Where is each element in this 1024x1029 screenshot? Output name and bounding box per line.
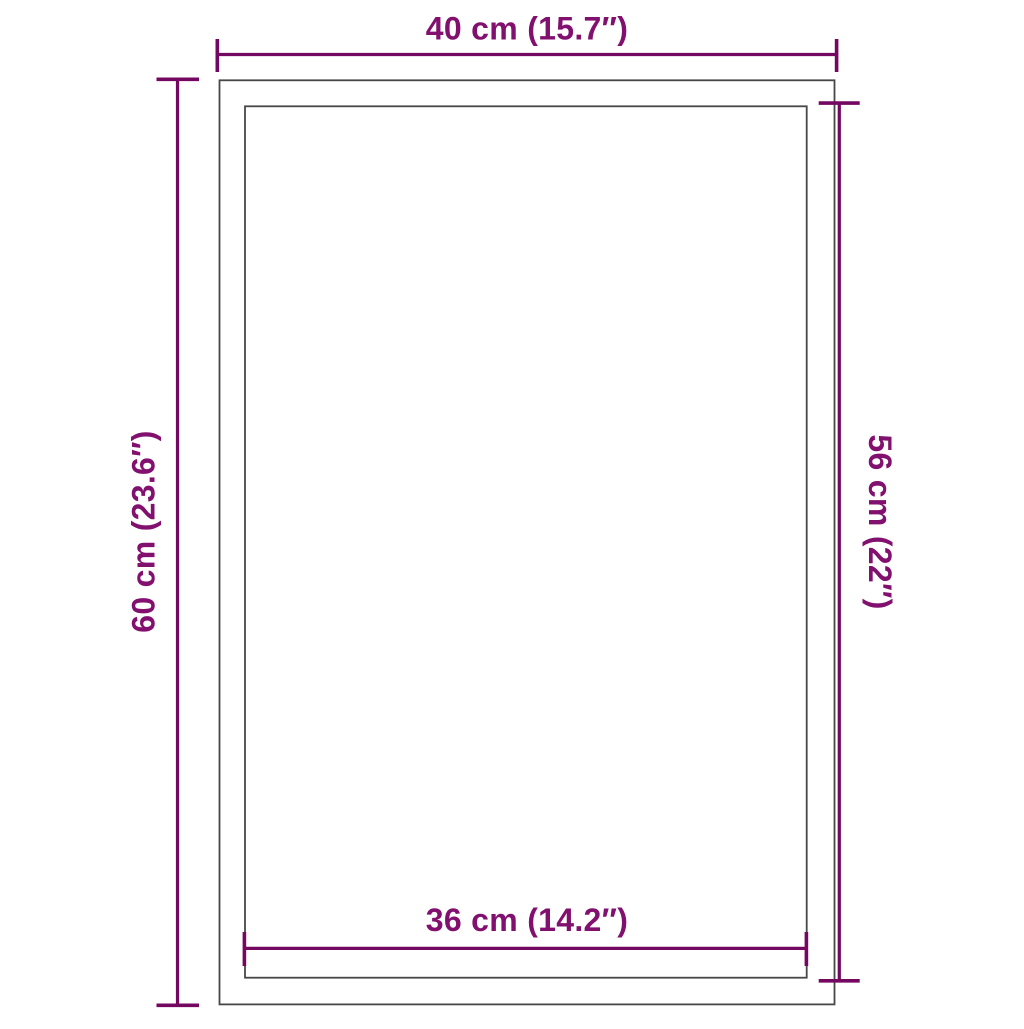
svg-text:40 cm (15.7″): 40 cm (15.7″): [426, 11, 628, 47]
svg-text:56 cm (22″): 56 cm (22″): [862, 434, 898, 609]
svg-text:36 cm (14.2″): 36 cm (14.2″): [426, 902, 628, 938]
svg-text:60 cm (23.6″): 60 cm (23.6″): [126, 430, 162, 632]
